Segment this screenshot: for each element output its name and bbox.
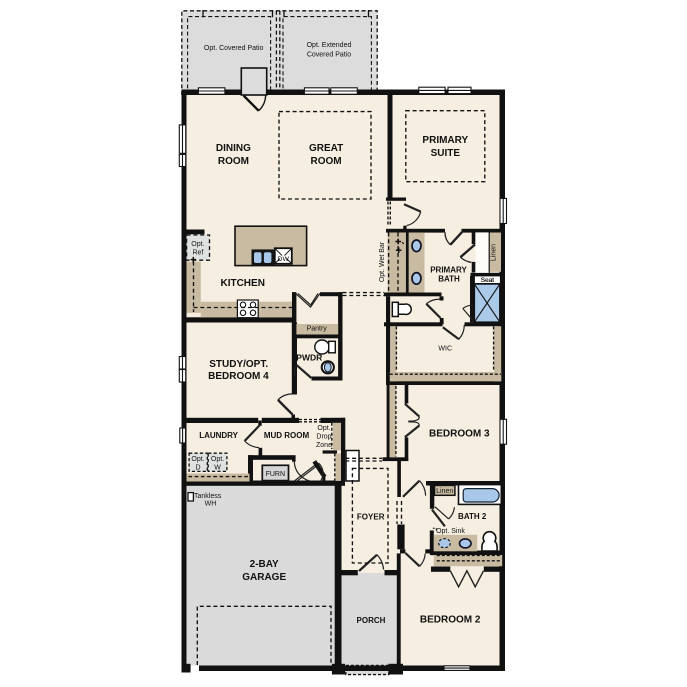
svg-text:PWDR: PWDR [296,352,322,362]
svg-text:Opt. Wet Bar: Opt. Wet Bar [379,241,386,282]
svg-text:BATH 2: BATH 2 [458,512,487,521]
svg-text:BEDROOM 4: BEDROOM 4 [208,371,269,382]
svg-text:2-BAY: 2-BAY [250,559,279,570]
svg-text:FURN: FURN [266,471,285,478]
svg-text:Opt. Extended: Opt. Extended [307,42,352,49]
svg-text:Opt.: Opt. [211,456,224,463]
svg-text:Drop: Drop [316,434,331,441]
svg-text:Opt.: Opt. [191,241,204,248]
svg-text:Ref: Ref [192,250,203,257]
svg-text:GREAT: GREAT [309,143,343,154]
svg-text:BEDROOM 3: BEDROOM 3 [429,428,490,439]
svg-text:ROOM: ROOM [218,156,249,167]
svg-text:Tankless: Tankless [194,493,222,500]
svg-text:PRIMARY: PRIMARY [422,135,468,146]
svg-text:PRIMARY: PRIMARY [430,266,467,275]
svg-text:DINING: DINING [216,143,251,154]
svg-text:Opt. Covered Patio: Opt. Covered Patio [204,45,264,52]
svg-text:Opt. Sink: Opt. Sink [436,528,465,535]
svg-text:KITCHEN: KITCHEN [220,278,264,289]
svg-text:PORCH: PORCH [357,616,386,625]
svg-text:Seat: Seat [481,277,495,284]
svg-text:LAUNDRY: LAUNDRY [199,431,238,440]
svg-text:STUDY/OPT.: STUDY/OPT. [209,359,268,370]
svg-text:D: D [195,464,200,471]
svg-text:Linen: Linen [436,488,453,495]
svg-text:MUD ROOM: MUD ROOM [264,431,310,440]
svg-text:Zone: Zone [316,442,332,449]
svg-text:Covered Patio: Covered Patio [307,52,351,59]
svg-text:SUITE: SUITE [431,148,461,159]
svg-text:Opt.: Opt. [317,425,330,432]
svg-text:GARAGE: GARAGE [242,572,286,583]
svg-text:BATH: BATH [438,275,460,284]
svg-text:WH: WH [205,500,217,507]
svg-text:Opt.: Opt. [191,456,204,463]
svg-text:W: W [214,464,221,471]
svg-text:BEDROOM 2: BEDROOM 2 [420,615,481,626]
svg-text:DW: DW [278,256,290,263]
svg-text:ROOM: ROOM [311,156,342,167]
svg-text:FOYER: FOYER [357,512,385,521]
svg-text:Linen: Linen [490,244,497,261]
svg-text:WIC: WIC [438,345,452,352]
svg-text:Pantry: Pantry [307,326,328,333]
